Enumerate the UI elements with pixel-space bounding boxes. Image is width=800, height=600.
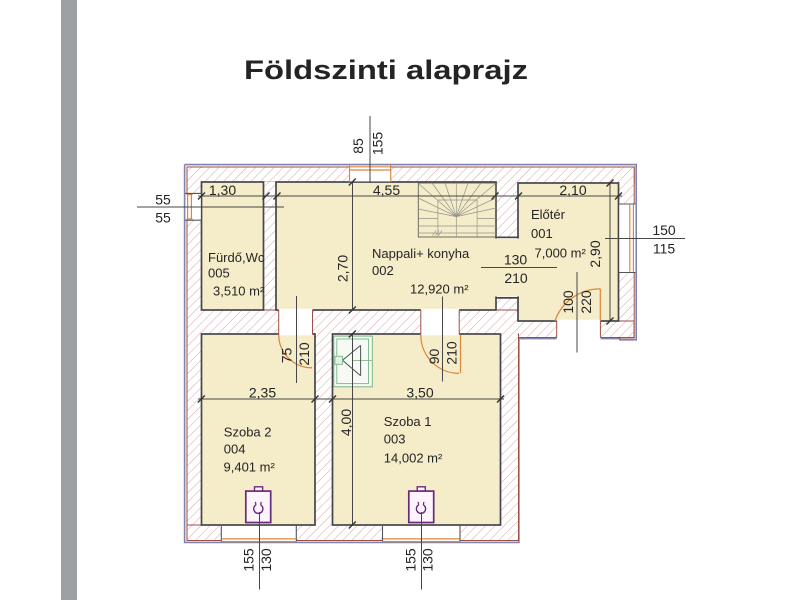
svg-text:55: 55 xyxy=(155,209,171,225)
svg-text:90: 90 xyxy=(426,349,442,365)
svg-text:Fürdő,Wc: Fürdő,Wc xyxy=(208,250,265,265)
svg-text:210: 210 xyxy=(296,342,312,366)
svg-text:005: 005 xyxy=(208,265,230,280)
svg-text:9,401 m²: 9,401 m² xyxy=(224,459,276,474)
svg-text:85: 85 xyxy=(350,138,366,154)
svg-text:12,920 m²: 12,920 m² xyxy=(410,282,469,297)
svg-text:Földszinti alaprajz: Földszinti alaprajz xyxy=(244,55,528,85)
svg-text:Előtér: Előtér xyxy=(531,207,566,222)
svg-text:55: 55 xyxy=(155,191,171,207)
svg-text:2,35: 2,35 xyxy=(249,385,276,401)
svg-text:004: 004 xyxy=(224,442,246,457)
svg-text:130: 130 xyxy=(420,548,436,572)
svg-text:210: 210 xyxy=(444,341,460,365)
svg-text:75: 75 xyxy=(279,348,295,364)
svg-text:7,000 m²: 7,000 m² xyxy=(535,246,587,261)
svg-text:4,55: 4,55 xyxy=(373,182,400,198)
svg-text:100: 100 xyxy=(560,290,576,314)
svg-text:Nappali+ konyha: Nappali+ konyha xyxy=(372,246,470,261)
svg-text:210: 210 xyxy=(504,270,528,286)
svg-text:155: 155 xyxy=(370,132,386,156)
svg-text:130: 130 xyxy=(258,548,274,572)
svg-text:003: 003 xyxy=(384,432,406,447)
svg-text:130: 130 xyxy=(504,252,528,268)
svg-text:2,70: 2,70 xyxy=(335,255,351,282)
svg-text:115: 115 xyxy=(653,241,676,257)
svg-text:14,002 m²: 14,002 m² xyxy=(384,451,443,466)
svg-text:150: 150 xyxy=(652,222,676,238)
svg-text:3,510 m²: 3,510 m² xyxy=(213,283,265,298)
svg-text:2,90: 2,90 xyxy=(587,240,603,267)
svg-text:001: 001 xyxy=(531,226,553,241)
svg-text:2,10: 2,10 xyxy=(559,182,586,198)
svg-text:155: 155 xyxy=(241,548,257,572)
svg-text:155: 155 xyxy=(403,548,419,572)
svg-text:Szoba 1: Szoba 1 xyxy=(384,414,432,429)
svg-text:4,00: 4,00 xyxy=(338,409,354,436)
svg-text:002: 002 xyxy=(372,263,394,278)
svg-text:Szoba 2: Szoba 2 xyxy=(224,425,272,440)
svg-text:220: 220 xyxy=(578,290,594,314)
svg-text:3,50: 3,50 xyxy=(406,385,433,401)
svg-text:1,30: 1,30 xyxy=(209,182,236,198)
